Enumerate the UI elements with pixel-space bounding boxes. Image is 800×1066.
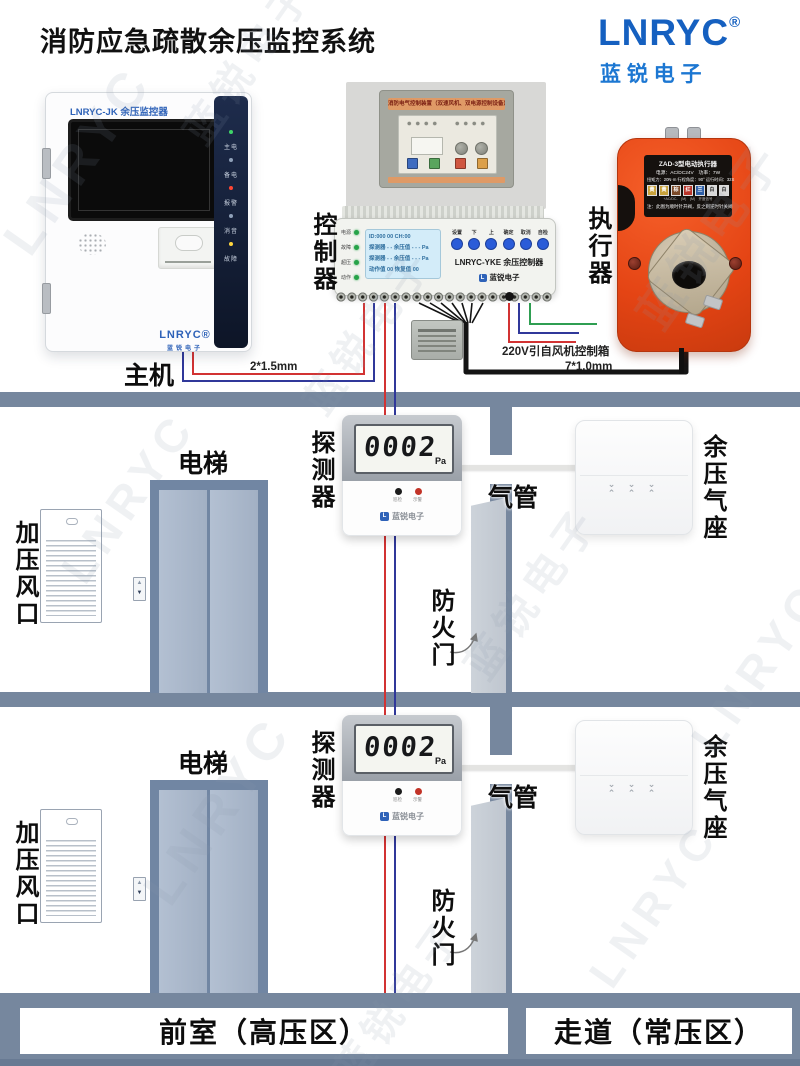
- power-wire-blue: [519, 303, 579, 333]
- air-seat-label: 余压气座: [700, 434, 724, 542]
- host-section-label: 主机: [124, 356, 174, 392]
- round-button[interactable]: [468, 238, 480, 250]
- warn-led-label: 示警: [413, 497, 422, 503]
- call-down-icon[interactable]: ▼: [134, 588, 145, 598]
- lcd-line: 探测器 - - 余压值 - - - Pa: [369, 254, 437, 265]
- grille-handle: [66, 518, 78, 525]
- call-up-icon[interactable]: ▲: [134, 878, 145, 888]
- led-label: 故障: [341, 244, 351, 251]
- wall-band: [0, 392, 800, 407]
- detector-top: 0002 Pa: [342, 715, 462, 781]
- controller-brand: L蓝锐电子: [447, 272, 551, 283]
- round-button[interactable]: [451, 238, 463, 250]
- host-screen: [68, 119, 220, 221]
- patrol-led-label: 巡检: [393, 497, 402, 503]
- fire-door: [471, 798, 506, 993]
- screw-icon: [628, 257, 641, 270]
- led-fault: 故障: [214, 242, 248, 266]
- led-label: 电源: [341, 229, 351, 236]
- patrol-led: [395, 488, 402, 495]
- led-label: 超压: [341, 259, 351, 266]
- host-brand-logo: LNRYC® 蓝锐电子: [152, 325, 218, 352]
- fire-door-label: 防火门: [428, 588, 452, 669]
- knob[interactable]: [475, 142, 488, 155]
- knob[interactable]: [455, 142, 468, 155]
- actuator-side-notch: [618, 185, 635, 231]
- lcd-line: 探测器 - - 余压值 - - - Pa: [369, 243, 437, 254]
- led-dot: [354, 230, 359, 235]
- speaker-grill-icon: [78, 233, 106, 255]
- page-title: 消防应急疏散余压监控系统: [40, 20, 376, 59]
- floor-section-1: 加压风口 电梯 ▲▼ 探测器 0002 Pa 巡检 示警 L蓝锐电子 气管 ⌄ …: [0, 392, 800, 693]
- actuator-spec2: 扭矩力：20N·m 行程角度：90° 运行时间：32S: [647, 177, 729, 183]
- actuator-cable-spec: 7*1.0mm: [565, 361, 612, 373]
- brand-subtitle: 蓝 锐 电 子: [600, 58, 756, 88]
- pressure-detector: 0002 Pa 巡检 示警 L蓝锐电子: [342, 415, 462, 536]
- wire-sub-labels: +AC/DC- (M) (M) 开度信号: [647, 197, 729, 202]
- brand-logo-text: LNRYC: [598, 12, 729, 53]
- partition-wall-upper: [490, 407, 512, 455]
- actuator-note: 注：此图为顺时针开阀，反之则逆时针关阀: [647, 204, 729, 210]
- legend-footer: 前室（高压区） 走道（常压区）: [0, 993, 800, 1066]
- controller-led-overpressure: 超压: [341, 259, 359, 266]
- pressure-air-seat: ⌄ ⌄ ⌄⌃ ⌃ ⌃: [575, 420, 693, 535]
- registered-mark: ®: [729, 14, 741, 31]
- lcd-unit: Pa: [435, 456, 446, 466]
- brand-text: 蓝锐电子: [490, 272, 520, 283]
- lcd-line: ID:000 00 CH:00: [369, 232, 437, 243]
- host-brand-text: LNRYC®: [159, 329, 211, 341]
- lcd-unit: Pa: [435, 756, 446, 766]
- seat-vents: ⌄ ⌄ ⌄: [576, 780, 692, 788]
- led-dot: [354, 260, 359, 265]
- round-button[interactable]: [520, 238, 532, 250]
- led-mute: 消音: [214, 214, 248, 238]
- detector-brand: L蓝锐电子: [343, 811, 461, 822]
- elevator-doors: [150, 480, 268, 693]
- led-label: 备电: [224, 173, 238, 179]
- grille-louvers: [46, 840, 96, 916]
- host-led-strip: 主电 备电 报警 消音 故障: [214, 96, 248, 348]
- fan-control-box-strip: [388, 177, 505, 183]
- led-alarm: 报警: [214, 186, 248, 210]
- led-label: 主电: [224, 145, 238, 151]
- detector-bottom: 巡检 示警 L蓝锐电子: [342, 781, 462, 836]
- led-dot: [354, 275, 359, 280]
- brand-text: 蓝锐电子: [392, 511, 424, 522]
- host-device: LNRYC-JK 余压监控器 LNRYC® 蓝锐电子 主电 备电 报警 消音 故…: [45, 92, 252, 352]
- seat-seam: [580, 475, 688, 476]
- button-label: 自检: [535, 229, 551, 236]
- detector-brand: L蓝锐电子: [343, 511, 461, 522]
- elevator-doors: [150, 780, 268, 993]
- wire-tag: 黄: [659, 185, 669, 196]
- round-button[interactable]: [537, 238, 549, 250]
- fan-control-box-banner: 消防电气控制装置（双速风机、双电源控制设备）: [388, 98, 505, 110]
- wire-tag: 白: [707, 185, 717, 196]
- controller-led-power: 电源: [341, 229, 359, 236]
- detector-lcd: 0002 Pa: [354, 424, 454, 474]
- button-up[interactable]: 上: [483, 229, 499, 250]
- led-label: 动作: [341, 274, 351, 281]
- air-tube: [460, 765, 580, 770]
- wire-tag: 棕: [671, 185, 681, 196]
- actuator-body: ZAD-3型电动执行器 电源：AC/DC24V 功率：7W 扭矩力：20N·m …: [617, 138, 751, 352]
- controller-module: 电源 故障 超压 动作 ID:000 00 CH:00 探测器 - - 余压值 …: [334, 218, 556, 296]
- call-up-icon[interactable]: ▲: [134, 578, 145, 588]
- nameplate: [411, 320, 463, 360]
- blue-button[interactable]: [407, 158, 418, 169]
- floor-section-2: 加压风口 电梯 ▲▼ 探测器 0002 Pa 巡检 示警 L蓝锐电子 气管 ⌄ …: [0, 692, 800, 993]
- elevator-label: 电梯: [178, 444, 228, 480]
- button-label: 取消: [518, 229, 534, 236]
- led-dot: [229, 158, 233, 162]
- zone-corridor: 走道（常压区）: [526, 1008, 792, 1054]
- red-button[interactable]: [455, 158, 466, 169]
- poster-canvas: 消防应急疏散余压监控系统 LNRYC® 蓝 锐 电 子 LNRYC-JK 余压监…: [0, 0, 800, 1066]
- air-tube: [460, 465, 580, 470]
- air-pipe-label: 气管: [488, 778, 538, 814]
- air-pipe-label: 气管: [488, 478, 538, 514]
- button-label: 确定: [501, 229, 517, 236]
- controller-led-fault: 故障: [341, 244, 359, 251]
- elevator-call-panel[interactable]: ▲▼: [133, 577, 146, 601]
- host-model-label: LNRYC-JK 余压监控器: [70, 104, 168, 118]
- elevator-door-right: [210, 490, 258, 693]
- fan-control-box: 消防电气控制装置（双速风机、双电源控制设备）: [379, 90, 514, 188]
- power-source-label: 220V引自风机控制箱: [502, 343, 609, 359]
- round-button[interactable]: [485, 238, 497, 250]
- brand-logo: LNRYC®: [598, 12, 741, 54]
- controller-section-label: 控制器: [310, 212, 334, 293]
- wire-tag: 白: [719, 185, 729, 196]
- wire-tag: 黄: [647, 185, 657, 196]
- fire-door-label: 防火门: [428, 888, 452, 969]
- actuator-shaft-hole: [672, 261, 706, 289]
- button-label: 上: [483, 229, 499, 236]
- indicator-leds: [405, 121, 439, 126]
- detector-label: 探测器: [308, 730, 332, 811]
- warn-led-label: 示警: [413, 797, 422, 803]
- partition-wall-upper: [490, 707, 512, 755]
- actuator-title: ZAD-3型电动执行器: [647, 158, 729, 168]
- led-dot: [229, 130, 233, 134]
- seat-seam: [580, 775, 688, 776]
- button-set[interactable]: 设置: [449, 229, 465, 250]
- seat-vents: ⌄ ⌄ ⌄: [576, 480, 692, 488]
- wire-tag: 兰: [695, 185, 705, 196]
- elevator-call-panel[interactable]: ▲▼: [133, 877, 146, 901]
- hinge-icon: [42, 283, 51, 314]
- brand-text: 蓝锐电子: [392, 811, 424, 822]
- led-dot: [229, 214, 233, 218]
- button-confirm[interactable]: 确定: [501, 229, 517, 250]
- brand-icon: L: [380, 512, 389, 521]
- power-wire-green: [530, 303, 597, 324]
- detector-top: 0002 Pa: [342, 415, 462, 481]
- seat-vents: ⌃ ⌃ ⌃: [576, 789, 692, 797]
- actuator-section-label: 执行器: [585, 206, 609, 287]
- pressure-detector: 0002 Pa 巡检 示警 L蓝锐电子: [342, 715, 462, 836]
- panel-display: [411, 137, 443, 155]
- orange-button[interactable]: [477, 158, 488, 169]
- actuator-device: ZAD-3型电动执行器 电源：AC/DC24V 功率：7W 扭矩力：20N·m …: [615, 126, 751, 372]
- indicator-leds: [453, 121, 487, 126]
- actuator-label-panel: ZAD-3型电动执行器 电源：AC/DC24V 功率：7W 扭矩力：20N·m …: [644, 155, 732, 217]
- host-cable-spec: 2*1.5mm: [250, 361, 297, 373]
- button-label: 设置: [449, 229, 465, 236]
- pressurized-vent-label: 加压风口: [12, 520, 36, 628]
- call-down-icon[interactable]: ▼: [134, 888, 145, 898]
- button-cancel[interactable]: 取消: [518, 229, 534, 250]
- lcd-value: 0002: [362, 432, 438, 463]
- power-wire-red: [509, 303, 576, 342]
- button-down[interactable]: 下: [466, 229, 482, 250]
- led-label: 故障: [224, 257, 238, 263]
- led-label: 消音: [224, 229, 238, 235]
- controller-model-label: LNRYC-YKE 余压控制器: [447, 257, 551, 268]
- button-selftest[interactable]: 自检: [535, 229, 551, 250]
- air-vent-grille: [40, 809, 102, 923]
- elevator-door-left: [159, 490, 207, 693]
- elevator-label: 电梯: [178, 744, 228, 780]
- brand-icon: L: [380, 812, 389, 821]
- elevator-door-right: [210, 790, 258, 993]
- fire-door: [471, 498, 506, 693]
- air-vent-grille: [40, 509, 102, 623]
- detector-bottom: 巡检 示警 L蓝锐电子: [342, 481, 462, 536]
- lcd-value: 0002: [362, 732, 438, 763]
- green-button[interactable]: [429, 158, 440, 169]
- led-dot: [354, 245, 359, 250]
- terminal-strip: [336, 292, 553, 302]
- fan-control-panel: [398, 115, 497, 174]
- actuator-spec1: 电源：AC/DC24V 功率：7W: [647, 169, 729, 176]
- fan-control-box-photo: 消防电气控制装置（双速风机、双电源控制设备）: [346, 82, 546, 209]
- detector-label: 探测器: [308, 430, 332, 511]
- wire-color-row: 黄 黄 棕 红 兰 白 白: [647, 185, 729, 196]
- led-dot: [229, 186, 233, 190]
- fitting-icon: [685, 312, 706, 328]
- patrol-led-label: 巡检: [393, 797, 402, 803]
- button-label: 下: [466, 229, 482, 236]
- seat-vents: ⌃ ⌃ ⌃: [576, 489, 692, 497]
- controller-led-action: 动作: [341, 274, 359, 281]
- pressure-air-seat: ⌄ ⌄ ⌄⌃ ⌃ ⌃: [575, 720, 693, 835]
- controller-buttons: 设置 下 上 确定 取消 自检: [449, 229, 551, 250]
- grille-handle: [66, 818, 78, 825]
- warn-led: [415, 488, 422, 495]
- hinge-icon: [42, 148, 51, 179]
- host-printer: [158, 227, 218, 269]
- detector-lcd: 0002 Pa: [354, 724, 454, 774]
- patrol-led: [395, 788, 402, 795]
- wire-tag: 红: [683, 185, 693, 196]
- host-brand-subtext: 蓝锐电子: [152, 343, 218, 352]
- led-main-power: 主电: [214, 130, 248, 154]
- actuator-cable: [679, 348, 684, 374]
- elevator-door-left: [159, 790, 207, 993]
- zone-front-room: 前室（高压区）: [20, 1008, 508, 1054]
- round-button[interactable]: [503, 238, 515, 250]
- led-dot: [229, 242, 233, 246]
- controller-lcd: ID:000 00 CH:00 探测器 - - 余压值 - - - Pa 探测器…: [365, 229, 441, 279]
- grille-louvers: [46, 540, 96, 616]
- screw-icon: [729, 257, 742, 270]
- footer-edge: [0, 1059, 800, 1066]
- air-seat-label: 余压气座: [700, 734, 724, 842]
- pressurized-vent-label: 加压风口: [12, 820, 36, 928]
- terminal-black: [505, 292, 514, 301]
- brand-icon: L: [479, 274, 487, 282]
- warn-led: [415, 788, 422, 795]
- led-backup-power: 备电: [214, 158, 248, 182]
- led-label: 报警: [224, 201, 238, 207]
- lcd-line: 动作值 00 恢复值 00: [369, 265, 437, 276]
- wall-band: [0, 692, 800, 707]
